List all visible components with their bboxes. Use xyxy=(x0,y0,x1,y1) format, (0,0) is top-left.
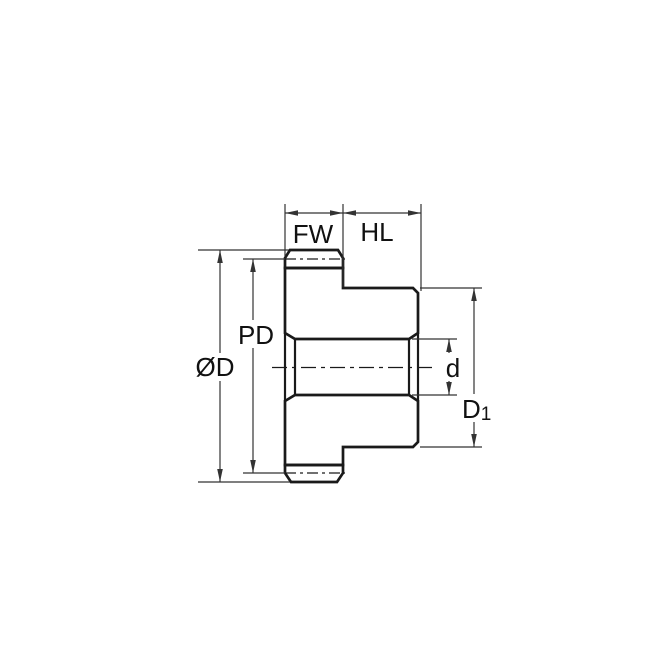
fw-arrow-right xyxy=(330,210,343,216)
bore-arrow-bottom xyxy=(446,382,452,395)
face-width-label: FW xyxy=(293,219,334,249)
gear-lower-body-section xyxy=(285,395,418,465)
pd-arrow-top xyxy=(250,259,256,272)
hub-length-label: HL xyxy=(360,217,393,247)
bore-diameter-label: d xyxy=(446,353,460,383)
pitch-diameter-label: PD xyxy=(238,320,274,350)
hub-arrow-top xyxy=(471,288,477,301)
pd-arrow-bottom xyxy=(250,460,256,473)
hub-arrow-bottom xyxy=(471,434,477,447)
gear-dimension-drawing: FW HL ØD PD d D1 xyxy=(0,0,670,670)
hl-arrow-right xyxy=(408,210,421,216)
hl-arrow-left xyxy=(343,210,356,216)
outside-diameter-label: ØD xyxy=(196,352,235,382)
od-arrow-bottom xyxy=(217,469,223,482)
centerlines xyxy=(272,259,436,473)
hub-diameter-label: D1 xyxy=(462,394,491,425)
od-arrow-top xyxy=(217,250,223,263)
bore-arrow-top xyxy=(446,339,452,352)
technical-drawing-canvas: FW HL ØD PD d D1 xyxy=(0,0,670,670)
gear-upper-body-section xyxy=(285,268,418,339)
gear-part xyxy=(285,250,418,482)
fw-arrow-left xyxy=(285,210,298,216)
